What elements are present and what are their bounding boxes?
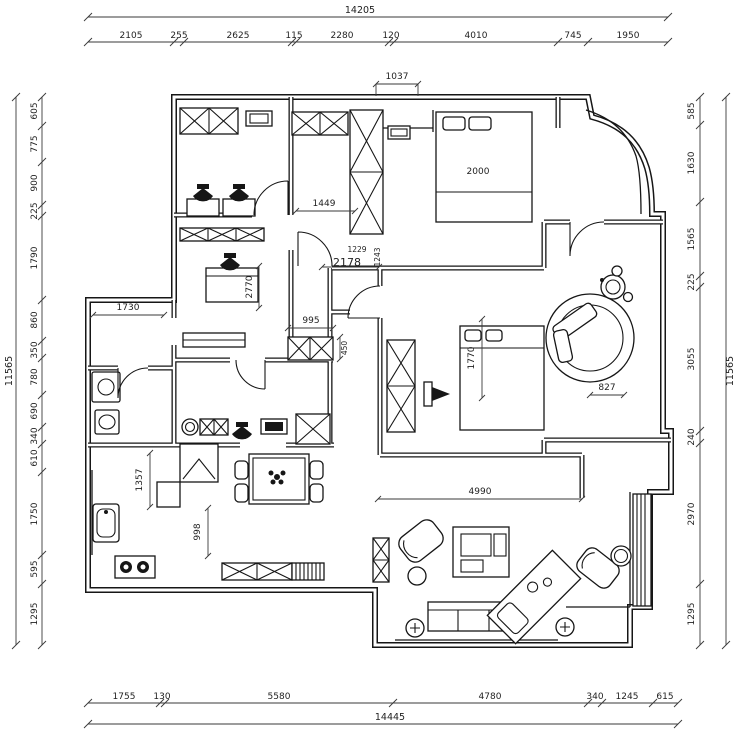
dim-right-0: 585 <box>687 102 697 119</box>
dim-bottom-0: 1755 <box>113 692 136 702</box>
toilet <box>600 266 633 302</box>
stove <box>115 556 155 578</box>
dim-right-overall: 11565 <box>725 356 736 386</box>
dim-top-3: 115 <box>285 31 302 41</box>
cabinet-hall-995 <box>288 337 333 360</box>
dim-bottom-5: 1245 <box>616 692 639 702</box>
dim-right-2: 1565 <box>687 228 697 251</box>
dim-left-7: 780 <box>30 368 40 385</box>
dim-top-7: 745 <box>564 31 581 41</box>
floor-symbol-left <box>406 619 424 637</box>
dim-right-4: 3055 <box>687 348 697 371</box>
fridge-cabinet <box>157 444 218 507</box>
dim-cabinet-width: 995 <box>302 316 319 326</box>
dim-bottom-1: 130 <box>153 692 170 702</box>
living-room-set <box>373 516 631 643</box>
dim-top-2: 2625 <box>227 31 250 41</box>
dim-left-5: 860 <box>30 311 40 328</box>
dim-right-7: 1295 <box>687 603 697 626</box>
window-strip-right <box>633 494 651 606</box>
tv-bedroom1 <box>246 111 272 126</box>
cabinet-x-living <box>373 538 389 582</box>
dim-right-1: 1630 <box>687 151 697 174</box>
dim-entry-opening: 1037 <box>386 72 409 82</box>
dim-hall-width: 1449 <box>313 199 336 209</box>
dim-kitchen-depth: 1357 <box>135 469 145 492</box>
dimension-chain-left: 11565 605 775 900 225 1790 860 350 780 6… <box>4 93 46 649</box>
dim-left-6: 350 <box>30 341 40 358</box>
bed-bedroom2 <box>460 326 544 430</box>
wardrobe-bedroom2 <box>387 340 415 432</box>
dim-left-overall: 11565 <box>4 356 15 386</box>
vanity-row-room3 <box>182 414 330 444</box>
wardrobe-master <box>350 110 383 234</box>
dining-cabinets <box>222 563 324 580</box>
wardrobe-bedroom1 <box>180 108 238 134</box>
dim-bottom-overall: 14445 <box>375 712 405 723</box>
dim-right-5: 240 <box>687 428 697 445</box>
dim-master-door-a: 2178 <box>333 256 361 269</box>
dim-top-5: 120 <box>382 31 399 41</box>
floor-symbol-right <box>556 618 574 636</box>
dim-left-11: 1750 <box>30 502 40 525</box>
dim-bottom-3: 4780 <box>479 692 502 702</box>
dim-left-10: 610 <box>30 449 40 466</box>
washing-machine <box>92 372 120 402</box>
dim-kitchen-pass: 998 <box>193 523 203 540</box>
dimension-chain-top: 14205 2105 255 2625 115 2280 120 4010 74… <box>84 5 672 46</box>
vanity-desks-bedroom1 <box>187 184 255 216</box>
dim-hall-left: 1730 <box>117 303 140 313</box>
dim-bottom-2: 5580 <box>268 692 291 702</box>
dim-living-width: 4990 <box>469 487 492 497</box>
basin-bath-left <box>95 410 119 434</box>
dim-top-0: 2105 <box>120 31 143 41</box>
dim-top-6: 4010 <box>465 31 488 41</box>
floor-plan-canvas: 14205 2105 255 2625 115 2280 120 4010 74… <box>0 0 740 740</box>
dim-bottom-6: 615 <box>656 692 673 702</box>
entry-door-panel <box>388 126 410 139</box>
dim-left-12: 595 <box>30 560 40 577</box>
dim-bath-tub: 827 <box>598 383 615 393</box>
dim-master-door-c: 1243 <box>373 247 382 266</box>
bench-study <box>183 333 245 347</box>
armchair <box>395 516 447 565</box>
dim-top-8: 1950 <box>617 31 640 41</box>
round-bathtub <box>546 294 634 382</box>
dim-top-4: 2280 <box>331 31 354 41</box>
dim-left-9: 340 <box>30 427 40 444</box>
dim-study-desk: 2770 <box>245 275 255 298</box>
dim-master-bed: 2000 <box>467 167 490 177</box>
dim-left-1: 775 <box>30 135 40 152</box>
dim-left-4: 1790 <box>30 246 40 269</box>
tv-bedroom2 <box>424 382 450 406</box>
kitchen-sink <box>93 504 119 542</box>
dining-table <box>235 454 323 504</box>
dim-left-8: 690 <box>30 402 40 419</box>
dim-bottom-4: 340 <box>586 692 603 702</box>
dim-bedroom2-bed: 1770 <box>467 346 477 369</box>
cabinet-master-entry <box>292 112 348 135</box>
dim-right-6: 2970 <box>687 502 697 525</box>
dimension-chain-right: 585 1630 1565 225 3055 240 2970 1295 115… <box>687 93 736 649</box>
dim-left-0: 605 <box>30 102 40 119</box>
dim-cabinet-depth: 450 <box>340 341 349 356</box>
dimension-chain-bottom: 1755 130 5580 4780 340 1245 615 14445 <box>84 692 682 728</box>
dim-left-3: 225 <box>30 202 40 219</box>
dim-left-13: 1295 <box>30 603 40 626</box>
shelf-study <box>180 228 264 241</box>
dim-top-1: 255 <box>170 31 187 41</box>
side-table <box>408 567 426 585</box>
coffee-table <box>453 527 509 577</box>
dim-left-2: 900 <box>30 174 40 191</box>
dim-right-3: 225 <box>687 273 697 290</box>
dim-top-overall: 14205 <box>345 5 375 16</box>
dim-master-door-b: 1229 <box>347 245 366 254</box>
